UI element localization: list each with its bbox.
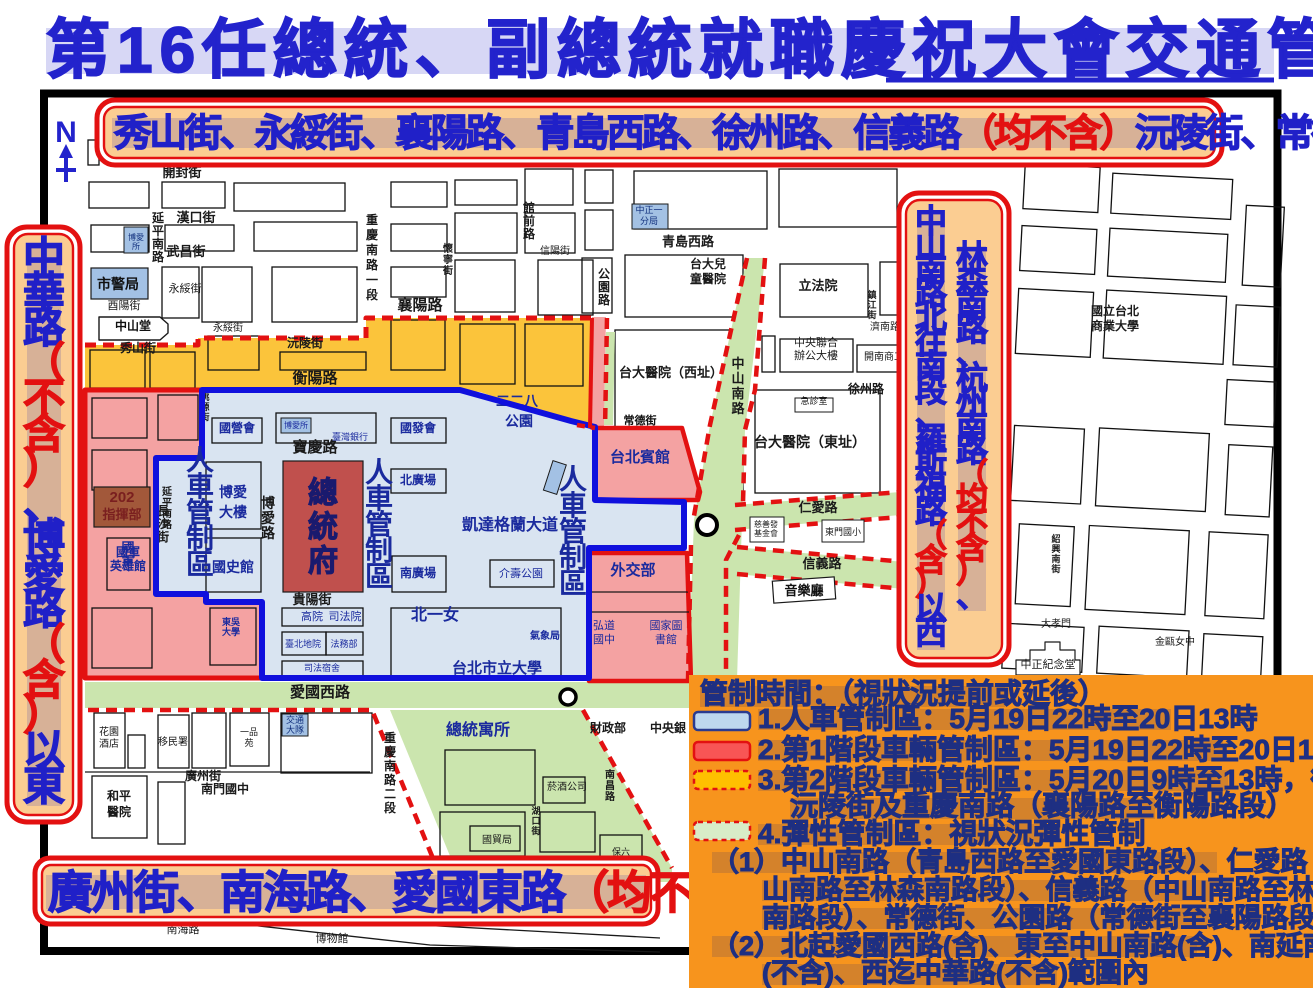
svg-text:仁愛路: 仁愛路 xyxy=(798,500,838,515)
svg-text:永綏街: 永綏街 xyxy=(169,281,202,295)
svg-text:信陽街: 信陽街 xyxy=(540,244,570,257)
svg-text:基金會: 基金會 xyxy=(754,528,778,538)
svg-text:凱達格蘭大道: 凱達格蘭大道 xyxy=(462,515,558,534)
svg-text:南門國中: 南門國中 xyxy=(201,781,249,796)
svg-text:大孝門: 大孝門 xyxy=(1041,617,1071,630)
svg-text:武昌街: 武昌街 xyxy=(166,244,205,259)
svg-text:公園路: 公園路 xyxy=(598,267,611,307)
svg-text:東吳: 東吳 xyxy=(222,616,241,627)
svg-text:沅陵街: 沅陵街 xyxy=(287,335,323,350)
svg-text:外交部: 外交部 xyxy=(609,561,655,579)
svg-text:中華路（不含）、博愛路（含）以東: 中華路（不含）、博愛路（含）以東 xyxy=(23,234,66,809)
svg-text:1.人車管制區：5月19日22時至20日13時: 1.人車管制區：5月19日22時至20日13時 xyxy=(758,702,1258,734)
svg-text:音樂廳: 音樂廳 xyxy=(784,583,823,598)
svg-text:延平南路: 延平南路 xyxy=(151,210,165,264)
svg-text:菸酒公司: 菸酒公司 xyxy=(547,781,587,793)
svg-text:交通: 交通 xyxy=(286,714,304,725)
svg-text:保六: 保六 xyxy=(612,846,630,857)
svg-text:高院: 高院 xyxy=(301,609,323,623)
svg-text:國立台北: 國立台北 xyxy=(1091,303,1139,318)
svg-text:東門國小: 東門國小 xyxy=(825,526,861,537)
svg-text:臺灣銀行: 臺灣銀行 xyxy=(332,431,368,442)
svg-text:台北賓館: 台北賓館 xyxy=(610,448,670,466)
svg-text:博愛所: 博愛所 xyxy=(284,420,308,430)
svg-text:秀山街: 秀山街 xyxy=(119,340,156,355)
svg-text:童醫院: 童醫院 xyxy=(690,271,726,286)
svg-text:博物館: 博物館 xyxy=(316,931,349,945)
svg-text:苑: 苑 xyxy=(244,737,253,748)
svg-text:辦公大樓: 辦公大樓 xyxy=(794,348,838,362)
svg-text:博愛路: 博愛路 xyxy=(261,495,276,541)
svg-text:大樓: 大樓 xyxy=(219,504,247,520)
svg-text:人車管制區: 人車管制區 xyxy=(186,445,214,580)
svg-text:市警局: 市警局 xyxy=(97,276,139,292)
svg-text:台大醫院（西址）: 台大醫院（西址） xyxy=(619,365,723,380)
svg-text:鎮江街: 鎮江街 xyxy=(866,289,876,320)
svg-text:立法院: 立法院 xyxy=(798,278,837,293)
svg-text:分局: 分局 xyxy=(640,216,658,226)
svg-text:金甌女中: 金甌女中 xyxy=(1155,635,1195,648)
svg-text:（2）北起愛國西路(含)、東至中山南路(含)、南延南海路: （2）北起愛國西路(含)、東至中山南路(含)、南延南海路 xyxy=(712,930,1313,961)
svg-text:紹興南街: 紹興南街 xyxy=(1050,533,1060,574)
svg-text:（1）中山南路（青島西路至愛國東路段）、仁愛路（中: （1）中山南路（青島西路至愛國東路段）、仁愛路（中 xyxy=(712,846,1313,877)
svg-text:國史館: 國史館 xyxy=(212,559,254,575)
svg-text:南路段）、常德街、公園路（常德街至襄陽路段）: 南路段）、常德街、公園路（常德街至襄陽路段） xyxy=(762,902,1313,933)
svg-text:大隊: 大隊 xyxy=(286,724,304,735)
svg-text:徐州路: 徐州路 xyxy=(847,381,885,396)
svg-text:花園: 花園 xyxy=(99,725,119,738)
svg-text:人車管制區: 人車管制區 xyxy=(559,464,587,599)
svg-text:弘道: 弘道 xyxy=(593,618,615,632)
svg-text:國貿局: 國貿局 xyxy=(482,834,512,846)
svg-text:中山堂: 中山堂 xyxy=(115,318,151,333)
svg-text:酒店: 酒店 xyxy=(99,737,119,750)
svg-text:慈善發: 慈善發 xyxy=(754,519,778,529)
svg-text:第16任總統、副總統就職慶祝大會交通管制範圍圖: 第16任總統、副總統就職慶祝大會交通管制範圍圖 xyxy=(46,14,1313,86)
svg-text:永綏街: 永綏街 xyxy=(213,321,243,334)
svg-text:信義路: 信義路 xyxy=(802,556,842,571)
svg-text:常德街: 常德街 xyxy=(624,413,657,427)
svg-text:中正一: 中正一 xyxy=(635,204,662,215)
svg-text:濟南路: 濟南路 xyxy=(870,320,900,333)
svg-text:臺北地院: 臺北地院 xyxy=(285,638,321,649)
svg-text:4.彈性管制區：視狀況彈性管制: 4.彈性管制區：視狀況彈性管制 xyxy=(758,817,1145,849)
svg-text:法務部: 法務部 xyxy=(330,638,357,649)
svg-text:湖口街: 湖口街 xyxy=(530,805,540,836)
svg-text:國發會: 國發會 xyxy=(400,420,437,435)
svg-text:沅陵街及重慶南路（襄陽路至衡陽路段）: 沅陵街及重慶南路（襄陽路至衡陽路段） xyxy=(790,789,1294,821)
svg-text:台大醫院（東址）: 台大醫院（東址） xyxy=(754,434,866,450)
svg-text:貴陽街: 貴陽街 xyxy=(292,592,331,607)
svg-text:台北市立大學: 台北市立大學 xyxy=(452,659,542,677)
svg-text:和平: 和平 xyxy=(106,788,131,803)
svg-text:國家圖: 國家圖 xyxy=(650,618,683,632)
svg-text:國軍: 國軍 xyxy=(116,545,140,559)
svg-text:大學: 大學 xyxy=(222,626,240,637)
svg-text:北一女: 北一女 xyxy=(411,605,459,624)
svg-text:中央銀: 中央銀 xyxy=(650,720,686,735)
svg-text:書館: 書館 xyxy=(655,632,677,646)
svg-text:南廣場: 南廣場 xyxy=(400,565,436,580)
svg-text:懷寧街: 懷寧街 xyxy=(442,242,453,277)
svg-text:一品: 一品 xyxy=(240,727,258,737)
svg-text:北廣場: 北廣場 xyxy=(400,472,436,487)
svg-text:商業大學: 商業大學 xyxy=(1091,318,1139,333)
svg-text:英雄館: 英雄館 xyxy=(110,558,146,573)
svg-text:國中: 國中 xyxy=(593,633,615,646)
svg-text:中正紀念堂: 中正紀念堂 xyxy=(1021,657,1076,671)
svg-text:指揮部: 指揮部 xyxy=(102,507,141,522)
svg-text:國營會: 國營會 xyxy=(219,420,256,435)
svg-text:司法宿舍: 司法宿舍 xyxy=(304,662,340,673)
svg-text:財政部: 財政部 xyxy=(589,720,626,735)
svg-text:中央聯合: 中央聯合 xyxy=(794,335,838,349)
svg-text:總統府: 總統府 xyxy=(308,476,338,578)
svg-text:博愛: 博愛 xyxy=(219,484,247,500)
svg-text:廣州街: 廣州街 xyxy=(185,768,221,783)
svg-text:中山南路北往南段、羅斯福路（含）以西: 中山南路北往南段、羅斯福路（含）以西 xyxy=(914,203,948,650)
svg-text:醫院: 醫院 xyxy=(107,804,131,819)
svg-text:202: 202 xyxy=(109,489,134,506)
svg-text:(不含)、西迄中華路(不含)範圍內: (不含)、西迄中華路(不含)範圍內 xyxy=(762,957,1149,988)
svg-text:衡陽路: 衡陽路 xyxy=(292,369,338,387)
svg-text:館前路: 館前路 xyxy=(522,200,536,241)
svg-text:司法院: 司法院 xyxy=(329,609,362,623)
svg-text:中山南路: 中山南路 xyxy=(731,356,745,416)
svg-text:介壽公園: 介壽公園 xyxy=(499,566,543,580)
svg-text:移民署: 移民署 xyxy=(158,735,188,748)
svg-text:南昌路: 南昌路 xyxy=(605,768,616,803)
svg-text:重慶南路二段: 重慶南路二段 xyxy=(384,730,397,815)
svg-text:酉陽街: 酉陽街 xyxy=(108,298,141,312)
svg-text:公園: 公園 xyxy=(505,413,533,429)
svg-text:所: 所 xyxy=(132,241,140,251)
svg-text:人車管制區: 人車管制區 xyxy=(365,457,393,592)
svg-text:山南路至林森南路段）、信義路（中山南路至林森: 山南路至林森南路段）、信義路（中山南路至林森 xyxy=(762,874,1313,905)
svg-text:秀山街、永綏街、襄陽路、青島西路、徐州路、信義路（均不含）沅: 秀山街、永綏街、襄陽路、青島西路、徐州路、信義路（均不含）沅陵街、常德街（均含）… xyxy=(113,113,1313,155)
svg-text:氣象局: 氣象局 xyxy=(530,629,560,642)
svg-text:林森南路、杭州南路（均不含）、: 林森南路、杭州南路（均不含）、 xyxy=(956,239,989,614)
svg-text:博愛: 博愛 xyxy=(128,232,144,242)
svg-text:襄陽路: 襄陽路 xyxy=(396,296,443,314)
svg-text:2.第1階段車輛管制區：5月19日22時至20日13時: 2.第1階段車輛管制區：5月19日22時至20日13時 xyxy=(758,733,1313,765)
svg-text:台大兒: 台大兒 xyxy=(690,256,726,271)
svg-text:愛國西路: 愛國西路 xyxy=(290,683,351,701)
svg-text:急診室: 急診室 xyxy=(800,395,827,406)
svg-text:總統寓所: 總統寓所 xyxy=(446,720,510,739)
svg-text:青島西路: 青島西路 xyxy=(662,234,715,249)
svg-text:漢口街: 漢口街 xyxy=(176,210,215,225)
